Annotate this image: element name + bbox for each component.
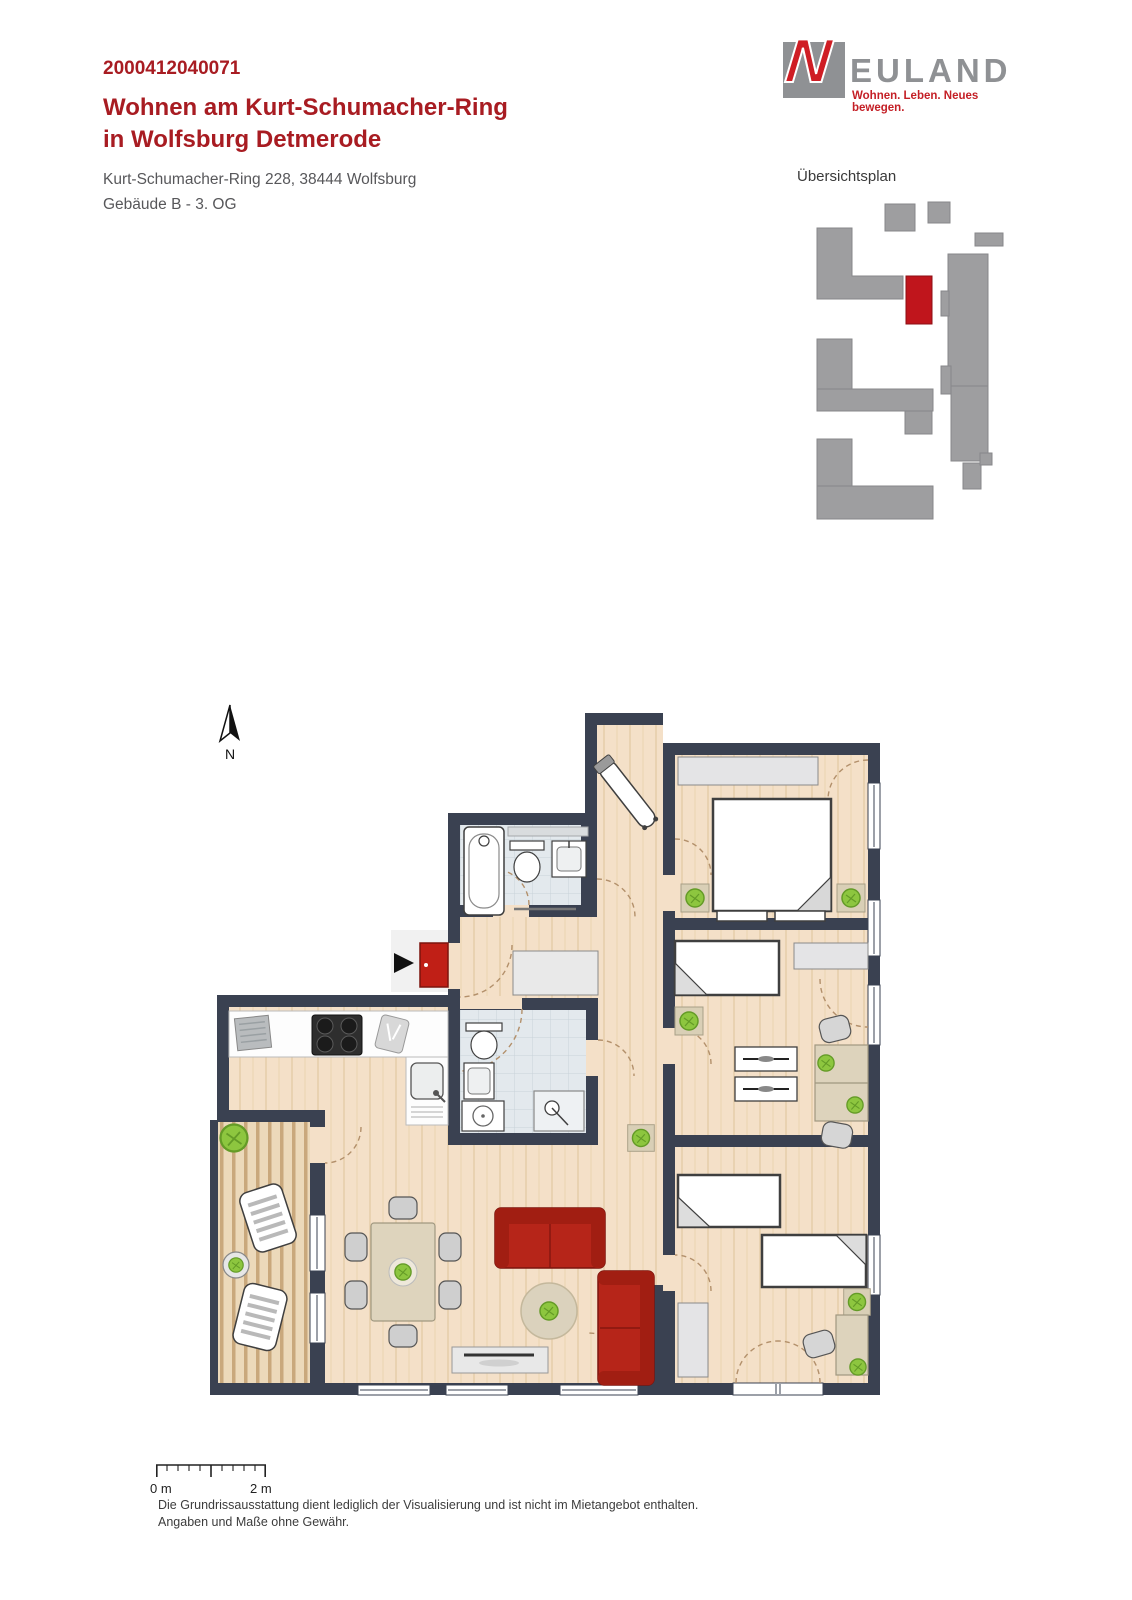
logo-wordmark: EULAND xyxy=(850,52,1012,90)
page-title-line2: in Wolfsburg Detmerode xyxy=(103,126,381,154)
dresser-2 xyxy=(735,1077,797,1101)
building-footprint-tab-2 xyxy=(941,366,951,394)
sofa-small xyxy=(598,1271,654,1385)
hall-wardrobe xyxy=(513,951,598,995)
page-title-line1: Wohnen am Kurt-Schumacher-Ring xyxy=(103,94,508,122)
hallway-plant xyxy=(628,1125,655,1152)
stove xyxy=(312,1015,362,1055)
page-root: { "header": { "listing_id": "20004120400… xyxy=(0,0,1132,1600)
scale-bar xyxy=(156,1464,272,1480)
overview-site-map xyxy=(795,196,1015,526)
listing-id: 2000412040071 xyxy=(103,58,240,80)
disclaimer-line-2: Angaben und Maße ohne Gewähr. xyxy=(158,1515,349,1529)
bathroom-sink xyxy=(552,841,586,877)
building-footprint-small-3 xyxy=(975,233,1003,246)
kitchen-appliance xyxy=(234,1015,271,1050)
child-room-2-wardrobe xyxy=(678,1303,708,1377)
single-bed-3 xyxy=(762,1235,866,1287)
building-footprint-tower-lower xyxy=(951,386,988,461)
single-bed-2 xyxy=(678,1175,780,1227)
desk-chair-2 xyxy=(820,1121,854,1150)
balcony-side-table xyxy=(223,1252,249,1278)
balcony-plant xyxy=(221,1125,248,1152)
single-bed-1 xyxy=(675,941,779,995)
overview-plan-title: Übersichtsplan xyxy=(797,168,896,185)
north-arrow-icon: N xyxy=(220,705,240,762)
tv-sideboard xyxy=(452,1347,548,1373)
hand-sink xyxy=(464,1063,494,1099)
dresser-1 xyxy=(735,1047,797,1071)
scale-label-start: 0 m xyxy=(150,1481,172,1496)
logo-initial-n: N xyxy=(782,26,834,97)
nightstand-plant-left xyxy=(681,884,709,912)
brand-logo: N EULAND Wohnen. Leben. Neues bewegen. xyxy=(778,36,1028,108)
bedroom-wardrobe xyxy=(678,757,818,785)
nightstand-plant-right xyxy=(837,884,865,912)
bathtub xyxy=(464,827,504,915)
logo-tagline: Wohnen. Leben. Neues bewegen. xyxy=(852,90,1028,114)
child-room-1-wardrobe xyxy=(794,943,868,969)
bathroom-shelf xyxy=(508,827,588,836)
building-footprint-L1 xyxy=(817,228,903,299)
disclaimer-line-1: Die Grundrissausstattung dient lediglich… xyxy=(158,1498,698,1512)
building-footprint-L2-h xyxy=(817,389,933,411)
kitchen-sink xyxy=(406,1057,448,1125)
building-footprint-tab-3 xyxy=(963,463,981,489)
double-bed xyxy=(713,799,831,921)
building-footprint-L2-foot xyxy=(905,411,932,434)
building-footprint-small-1 xyxy=(885,204,915,231)
desk-plant-2 xyxy=(847,1097,863,1113)
building-floor-line: Gebäude B - 3. OG xyxy=(103,196,237,214)
plant-table-2 xyxy=(844,1289,871,1316)
dining-table xyxy=(371,1223,435,1321)
desk-plant-3 xyxy=(850,1359,866,1375)
address-line: Kurt-Schumacher-Ring 228, 38444 Wolfsbur… xyxy=(103,171,416,189)
apartment-highlight xyxy=(906,276,932,324)
shower xyxy=(534,1091,584,1131)
building-footprint-small-2 xyxy=(928,202,950,223)
scale-label-end: 2 m xyxy=(250,1481,272,1496)
round-rug xyxy=(521,1283,577,1339)
north-label: N xyxy=(225,746,235,762)
desk-plant-1 xyxy=(818,1055,834,1071)
entrance-door-handle xyxy=(424,963,428,967)
building-footprint-tower-upper xyxy=(948,254,988,386)
plant-table-1 xyxy=(675,1007,703,1035)
floor-plan: N xyxy=(208,695,923,1410)
building-footprint-tab-4 xyxy=(980,453,992,465)
building-footprint-tab-1 xyxy=(941,291,949,316)
building-footprint-L3-h xyxy=(817,486,933,519)
sofa-large xyxy=(495,1208,605,1268)
washing-machine xyxy=(462,1101,504,1131)
